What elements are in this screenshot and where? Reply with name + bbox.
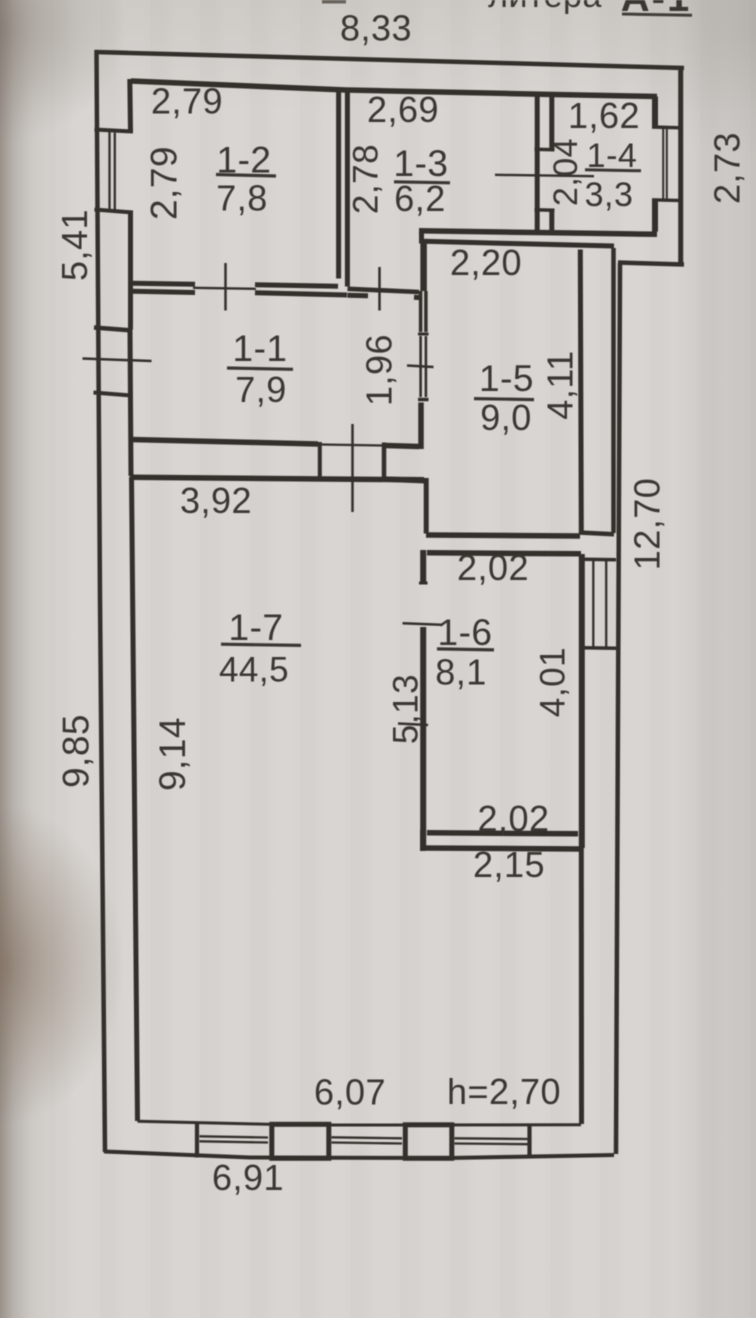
svg-text:1-7: 1-7 [229,607,284,648]
svg-text:2,79: 2,79 [151,81,223,122]
svg-text:1,62: 1,62 [568,95,640,136]
svg-text:2,69: 2,69 [367,89,439,130]
svg-text:2,79: 2,79 [144,146,185,220]
svg-text:2,15: 2,15 [473,844,545,885]
svg-text:1-1: 1-1 [233,328,288,369]
svg-text:литера: литера [488,0,602,15]
svg-text:6,07: 6,07 [314,1072,386,1113]
svg-text:7,9: 7,9 [235,369,287,410]
svg-text:5,13: 5,13 [387,674,426,744]
svg-text:9,85: 9,85 [56,714,97,788]
svg-text:А-1: А-1 [621,0,691,20]
svg-text:1-5: 1-5 [479,358,534,399]
svg-text:12,70: 12,70 [627,478,668,571]
svg-text:3,92: 3,92 [180,480,252,521]
svg-text:8,33: 8,33 [340,8,412,49]
svg-text:5,41: 5,41 [54,209,95,281]
svg-text:1,96: 1,96 [359,334,400,406]
svg-text:6,2: 6,2 [394,178,446,219]
svg-text:2,04: 2,04 [547,138,585,206]
svg-text:9,0: 9,0 [480,397,532,438]
svg-text:4,11: 4,11 [540,350,581,419]
svg-text:2,20: 2,20 [450,242,522,283]
svg-text:1-6: 1-6 [438,612,493,653]
svg-text:4,01: 4,01 [534,647,573,717]
svg-text:2,02: 2,02 [477,798,549,839]
svg-text:2,73: 2,73 [707,132,748,204]
svg-text:h=2,70: h=2,70 [447,1071,561,1112]
svg-text:9,14: 9,14 [152,717,193,791]
svg-text:2,02: 2,02 [457,547,529,588]
svg-text:3,3: 3,3 [585,176,634,214]
svg-text:2,78: 2,78 [347,144,386,214]
svg-text:44,5: 44,5 [219,651,289,690]
svg-text:6,91: 6,91 [212,1157,284,1198]
svg-text:7,8: 7,8 [216,178,268,219]
svg-text:8,1: 8,1 [435,652,487,693]
